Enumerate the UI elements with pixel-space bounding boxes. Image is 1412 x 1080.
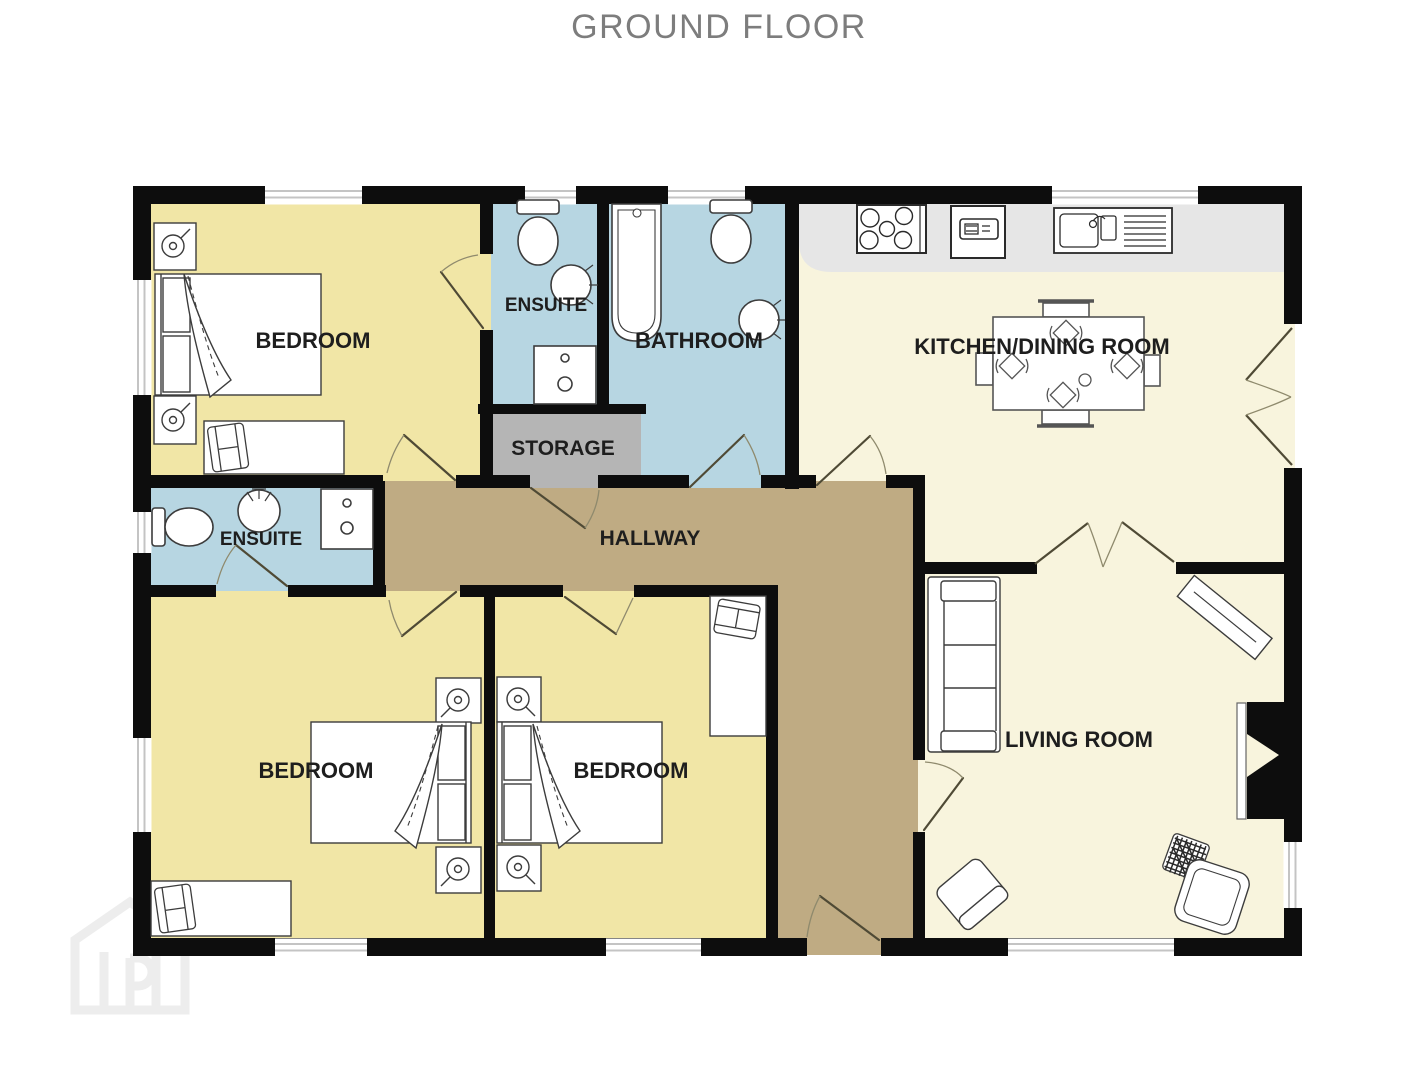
svg-text:KITCHEN/DINING ROOM: KITCHEN/DINING ROOM bbox=[914, 334, 1169, 359]
svg-text:STORAGE: STORAGE bbox=[511, 437, 614, 460]
svg-text:GROUND FLOOR: GROUND FLOOR bbox=[571, 8, 867, 46]
svg-text:BEDROOM: BEDROOM bbox=[574, 758, 689, 783]
svg-text:LIVING ROOM: LIVING ROOM bbox=[1005, 727, 1153, 752]
svg-text:BEDROOM: BEDROOM bbox=[256, 328, 371, 353]
svg-text:BATHROOM: BATHROOM bbox=[635, 328, 763, 353]
svg-text:ENSUITE: ENSUITE bbox=[220, 529, 302, 550]
svg-text:BEDROOM: BEDROOM bbox=[259, 758, 374, 783]
svg-text:HALLWAY: HALLWAY bbox=[600, 527, 701, 550]
svg-text:ENSUITE: ENSUITE bbox=[505, 295, 587, 316]
